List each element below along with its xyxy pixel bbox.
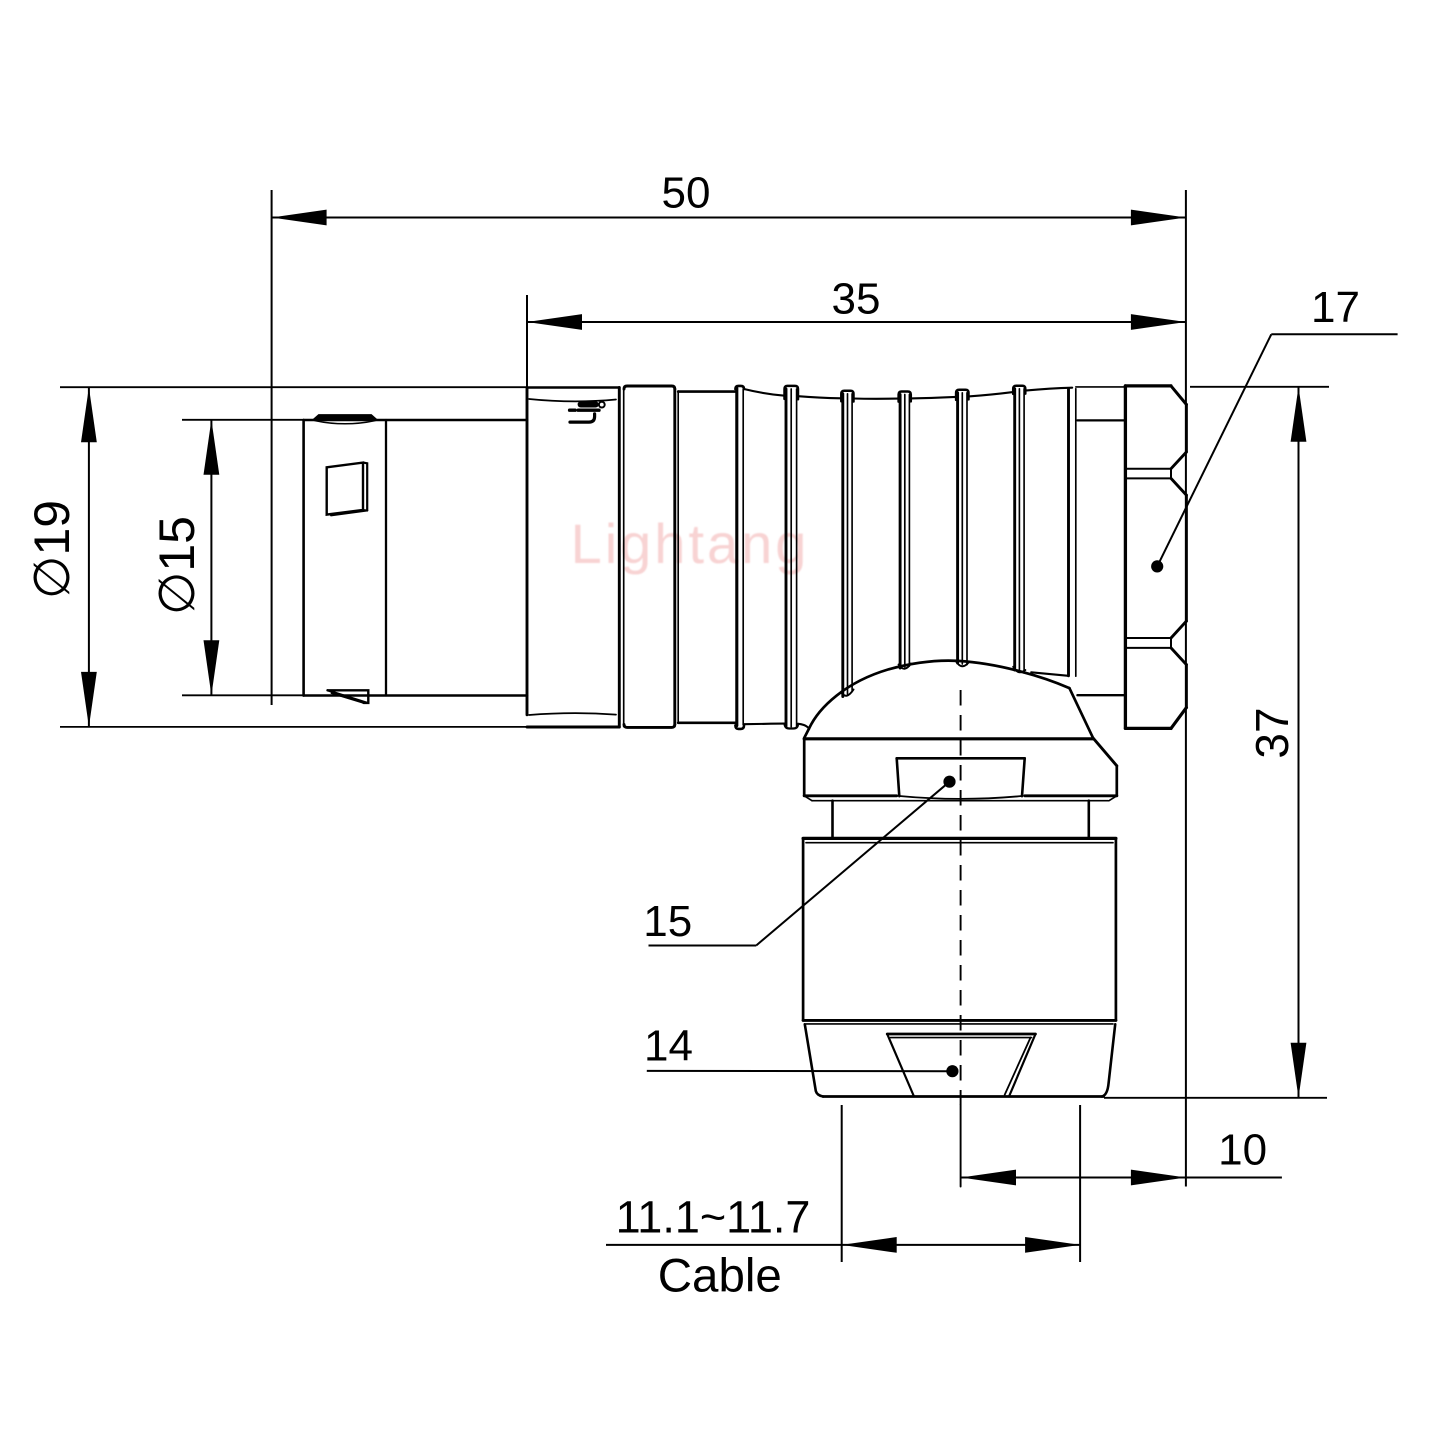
- svg-text:14: 14: [644, 1022, 693, 1071]
- svg-text:10: 10: [1218, 1126, 1267, 1175]
- svg-text:Lightang: Lightang: [571, 512, 810, 575]
- svg-text:Cable: Cable: [658, 1250, 782, 1303]
- svg-text:37: 37: [1246, 707, 1298, 758]
- svg-text:15: 15: [643, 897, 692, 946]
- svg-text:∅19: ∅19: [24, 500, 80, 599]
- svg-text:∅15: ∅15: [149, 516, 205, 615]
- svg-text:17: 17: [1311, 283, 1360, 332]
- svg-text:50: 50: [662, 169, 711, 218]
- svg-text:35: 35: [832, 275, 881, 324]
- svg-text:11.1~11.7: 11.1~11.7: [616, 1192, 811, 1243]
